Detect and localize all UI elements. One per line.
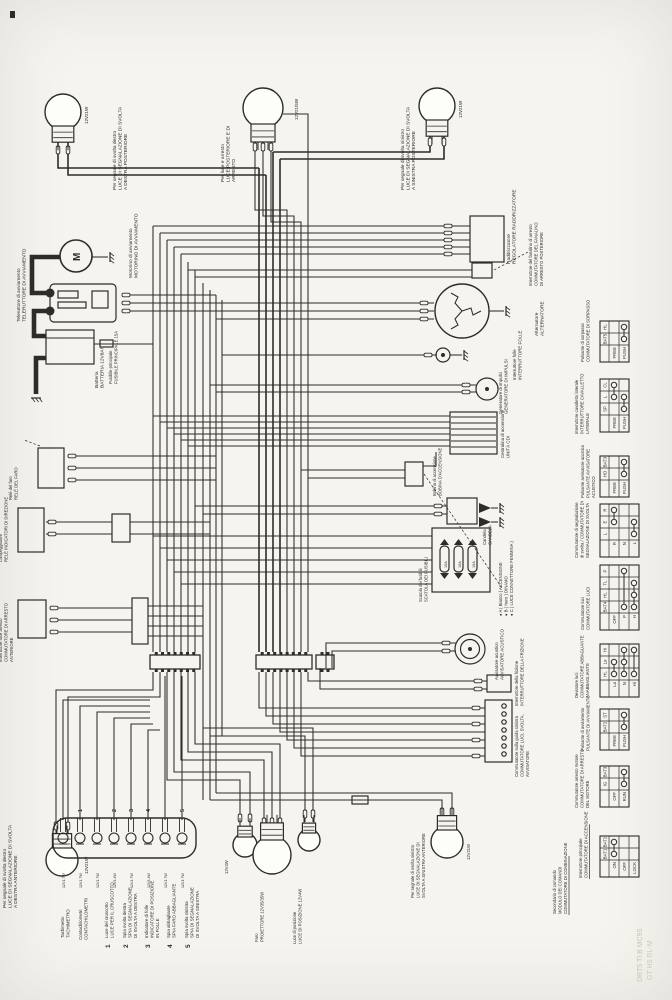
switch-pin bbox=[502, 744, 506, 748]
diagram-label: A DESTRA POSTERIORE bbox=[123, 134, 129, 190]
table-row-label: Lo bbox=[612, 681, 617, 686]
bulb-base bbox=[52, 126, 74, 142]
table-row-label: N bbox=[622, 682, 627, 685]
diagram-label: Relè del faro bbox=[8, 476, 13, 500]
switch-table-5: HLLoHiLoNHi bbox=[600, 644, 639, 697]
diagram-label: Interruttore cavalletto laterale bbox=[574, 379, 579, 434]
bullet-connector bbox=[428, 138, 432, 146]
switch-pin bbox=[502, 720, 506, 724]
connector-pin bbox=[261, 652, 264, 655]
diagram-label: A SINISTRA POSTERIORE bbox=[411, 131, 417, 190]
arrow-symbol bbox=[468, 539, 477, 545]
bullet-connector bbox=[442, 649, 450, 653]
continuity-mark bbox=[611, 659, 616, 664]
continuity-mark bbox=[621, 724, 626, 729]
bulb-base bbox=[261, 823, 284, 840]
diagram-label: Commutatore arresto motore bbox=[574, 754, 579, 808]
table-row-label: FREE bbox=[612, 347, 617, 359]
battery bbox=[46, 330, 94, 364]
diagram-label: Pulsante di avviamento bbox=[580, 707, 585, 751]
switch-pin bbox=[502, 704, 506, 708]
diagram-label: A DESTRA ANTERIORE bbox=[13, 855, 19, 908]
continuity-mark bbox=[631, 647, 636, 652]
diagram-label: LUCE DI SEGNALAZIONE DI SVOLTA bbox=[8, 824, 14, 908]
arrow-symbol bbox=[440, 539, 449, 545]
lamp-number: 1 bbox=[78, 809, 84, 812]
table-row-label: PUSH bbox=[622, 482, 627, 494]
table-col-header: E bbox=[603, 520, 608, 523]
bullet-connector bbox=[420, 309, 428, 313]
diagram-label: RELÈ DEL FARO bbox=[14, 467, 19, 500]
arrow-symbol bbox=[454, 573, 463, 579]
table-row-label: OFF bbox=[622, 862, 627, 871]
diagram-label: DI SVOLTA A DESTRA bbox=[133, 893, 138, 938]
bullet-connector bbox=[68, 466, 76, 470]
bulb-base bbox=[302, 823, 315, 833]
continuity-mark bbox=[621, 647, 626, 652]
battery-cable bbox=[32, 257, 60, 293]
lamp-number: 3 bbox=[129, 809, 135, 812]
diagram-label: COMMUTATORE DI ACCENSIONE bbox=[584, 811, 589, 878]
switch-table-8: BAT1BAT2ONOFFLOCK bbox=[600, 836, 639, 877]
bullet-connector bbox=[122, 293, 130, 297]
diagram-label: SEGNALAZIONE DI SVOLTA bbox=[585, 503, 590, 558]
diagram-label: Interruttore folle bbox=[512, 349, 517, 380]
diagram-label: 12V21W bbox=[84, 106, 89, 124]
diagram-label: COMMUTATORE DI COMBINAZIONE bbox=[563, 842, 568, 914]
table-row-label: LOCK bbox=[632, 862, 637, 874]
connector-pin bbox=[180, 669, 183, 672]
diagram-label: COMMUTATORE DI SORPASSO bbox=[586, 299, 591, 362]
battery-cable bbox=[36, 358, 46, 394]
diagram-label: SPIA FARO ABBAGLIANTE bbox=[172, 884, 177, 938]
diagram-label: Avvisatore acustico bbox=[494, 642, 499, 680]
diagram-label: COMMUTATORE DI ARRESTO bbox=[580, 748, 585, 808]
table-col-header: BAT4 bbox=[603, 601, 608, 612]
diagram-label: ● B ( Nero ) DINAMO bbox=[503, 576, 508, 616]
diagram-label: Tachimetro bbox=[60, 916, 65, 938]
continuity-mark bbox=[611, 519, 616, 524]
bullet-connector bbox=[434, 504, 442, 508]
neutral-switch-dot bbox=[441, 353, 445, 357]
ignition-coil bbox=[447, 498, 477, 524]
bulb-lamp bbox=[431, 826, 463, 858]
connector-pin bbox=[321, 669, 324, 672]
table-col-header: BAT5 bbox=[603, 333, 608, 344]
continuity-mark bbox=[621, 659, 626, 664]
switch-table-7: IGBAT3OFFRUN bbox=[600, 766, 629, 807]
continuity-mark bbox=[611, 394, 616, 399]
diagram-label: RELÈ INDICATORI DI DIREZIONE bbox=[4, 497, 9, 562]
diagram-label: Secondario di comando bbox=[552, 869, 557, 914]
diagram-label: 12V21W bbox=[458, 100, 463, 118]
diagram-label: Faro bbox=[254, 933, 259, 942]
diagram-label: Pulsante avvisatore acustico bbox=[580, 444, 585, 498]
bullet-connector bbox=[253, 143, 257, 151]
bullet-connector bbox=[442, 641, 450, 645]
diagram-label: TELERUTTORE DI AVVIAMENTO bbox=[22, 248, 28, 322]
arrow-symbol bbox=[468, 573, 477, 579]
connector-pin bbox=[273, 669, 276, 672]
diagram-label: Interruttore del fanalino di arresto bbox=[528, 224, 533, 286]
continuity-mark bbox=[631, 531, 636, 536]
diagram-label: LUCE DI SEGNALAZIONE DI SVOLTA bbox=[118, 106, 124, 190]
relay-detail bbox=[58, 302, 86, 308]
diagram-label: LUCE DI POSIZIONE 12V4W bbox=[298, 889, 303, 944]
diagram-label: Interruttore principale bbox=[578, 838, 583, 878]
table-col-header: HL bbox=[603, 592, 608, 598]
diagram-label: Alternatore bbox=[534, 312, 540, 336]
diagram-label: Contachilometri bbox=[78, 909, 83, 940]
table-col-header: Hi bbox=[603, 648, 608, 652]
lamp-rating: 12V1.7W bbox=[96, 873, 100, 888]
diagram-label: ACUSTICO bbox=[591, 476, 596, 498]
wire bbox=[114, 718, 150, 820]
switch-pin bbox=[502, 752, 506, 756]
connector-pin bbox=[180, 652, 183, 655]
diagram-label: ● A ( Bianco ) ACCENSIONE bbox=[498, 562, 503, 616]
bullet-connector bbox=[122, 309, 130, 313]
diagram-label: MODULO DEI COMANDI bbox=[558, 867, 563, 914]
bulb-lamp bbox=[253, 836, 291, 874]
diagram-label: Commutatore di segnalazione bbox=[574, 502, 579, 558]
connector-pin bbox=[279, 669, 282, 672]
diagram-label: GT H5 RL-M bbox=[647, 940, 654, 980]
diagram-label: 12V21/5W bbox=[294, 98, 299, 120]
wire bbox=[326, 643, 456, 668]
diagram-label: Lampeggiatore bbox=[0, 533, 3, 562]
table-col-header: IG bbox=[603, 781, 608, 786]
bullet-connector bbox=[434, 512, 442, 516]
diagram-label: DI SVOLTA A SINISTRA bbox=[195, 891, 200, 938]
lamp-number: 2 bbox=[112, 809, 118, 812]
connector-pin bbox=[267, 652, 270, 655]
diagram-label: PROIETTORE 12V35/35W bbox=[260, 892, 265, 942]
bulb-base bbox=[238, 826, 252, 837]
continuity-mark bbox=[611, 382, 616, 387]
bulb-base bbox=[426, 120, 448, 136]
switch-table-2: HOBAT3FREEPUSH bbox=[600, 456, 629, 497]
flasher-relay bbox=[18, 508, 44, 552]
connector-pin bbox=[321, 652, 324, 655]
switch-table-1: SPLCLFREEPUSH bbox=[600, 379, 629, 432]
horn-dot bbox=[468, 647, 472, 651]
wire bbox=[301, 672, 485, 756]
diagram-label: Per segnale di svolta sinistro bbox=[410, 844, 415, 898]
connector-pin bbox=[267, 669, 270, 672]
connector-pin bbox=[167, 652, 170, 655]
wire bbox=[174, 672, 250, 826]
wire bbox=[131, 724, 153, 820]
diagram-label: 10A bbox=[444, 561, 448, 568]
diagram-label: Deviatore luci bbox=[574, 673, 579, 698]
wire bbox=[210, 800, 442, 820]
bulb-base bbox=[437, 816, 456, 830]
diagram-label: Spia svolta destra bbox=[122, 903, 127, 938]
lamp-rating: 12V1.7W bbox=[164, 873, 168, 888]
switch-pin bbox=[502, 728, 506, 732]
cluster-lamp bbox=[109, 833, 119, 843]
bulb-lamp bbox=[419, 88, 455, 124]
connector-pin bbox=[186, 652, 189, 655]
bullet-connector bbox=[68, 478, 76, 482]
diagram-label: Pulsante di sorpasso bbox=[580, 322, 585, 362]
connector-pin bbox=[304, 652, 307, 655]
wire bbox=[195, 672, 280, 830]
diagram-label: ANTERIORE bbox=[9, 637, 14, 662]
diagram-label: COMMUTATORE ABBAGLIANTE bbox=[580, 635, 585, 698]
diagram-label: Generatore di impulsi bbox=[498, 372, 503, 414]
cluster-lamp bbox=[126, 833, 136, 843]
relay-detail bbox=[58, 291, 78, 298]
switch-pin bbox=[502, 736, 506, 740]
table-col-header: HL bbox=[603, 324, 608, 330]
diagram-label: Teleruttore di avviamento bbox=[16, 268, 22, 322]
table-row-label: N bbox=[622, 542, 627, 545]
bullet-connector bbox=[50, 630, 58, 634]
diagram-label: SVOLTA A SINISTRA ANTERIORE bbox=[421, 833, 426, 898]
cdi-unit bbox=[450, 412, 497, 454]
wire bbox=[210, 736, 305, 822]
wire bbox=[294, 672, 485, 748]
bullet-connector bbox=[472, 722, 480, 726]
diagram-label: BOBINA D'ACCENSIONE bbox=[438, 448, 443, 496]
table-col-header: HO bbox=[603, 470, 608, 477]
connector-pin bbox=[186, 669, 189, 672]
diode-box bbox=[112, 514, 130, 542]
bullet-connector bbox=[444, 224, 452, 228]
diagram-label: 12V4W bbox=[224, 860, 229, 874]
bulb-base bbox=[251, 124, 275, 142]
continuity-mark bbox=[631, 604, 636, 609]
table-row-label: FREE bbox=[612, 735, 617, 747]
connector-pin bbox=[261, 669, 264, 672]
wire bbox=[263, 140, 294, 652]
wire bbox=[203, 728, 313, 822]
diagram-label: SPIA DI SEGNALAZIONE bbox=[190, 887, 195, 938]
wire bbox=[287, 672, 485, 740]
cluster-lamp bbox=[75, 833, 85, 843]
connector-pin bbox=[192, 652, 195, 655]
continuity-mark bbox=[621, 471, 626, 476]
continuity-mark bbox=[621, 781, 626, 786]
continuity-mark bbox=[621, 671, 626, 676]
diagram-label: Bobina di accensione bbox=[432, 456, 437, 496]
table-row-label: FREE bbox=[612, 482, 617, 494]
bulb-lamp bbox=[243, 88, 283, 128]
connector-pin bbox=[298, 669, 301, 672]
connector-pin bbox=[286, 669, 289, 672]
bullet-connector bbox=[474, 687, 482, 691]
table-row-label: PUSH bbox=[622, 735, 627, 747]
table-row-label: R bbox=[612, 542, 617, 545]
table-col-header: L bbox=[603, 395, 608, 398]
diagram-label: Motorino di avviamento bbox=[128, 228, 134, 278]
diagram-label: Commutatore sulla guida sinistra bbox=[514, 715, 519, 777]
relay-detail bbox=[92, 291, 108, 308]
wire bbox=[280, 136, 444, 159]
diagram-label: ARRESTO bbox=[231, 159, 237, 182]
diagram-label: Candela bbox=[482, 529, 487, 545]
diagram-label: AVVISATORE bbox=[525, 751, 530, 777]
cluster-lamp bbox=[143, 833, 153, 843]
wire bbox=[266, 672, 485, 716]
table-row-label: L bbox=[632, 541, 637, 544]
table-row-label: RUN bbox=[622, 792, 627, 801]
diagram-label: Interruttore della frizione bbox=[514, 660, 519, 706]
continuity-mark bbox=[611, 839, 616, 844]
table-col-header: L bbox=[603, 532, 608, 535]
bullet-connector bbox=[444, 252, 452, 256]
arrow-symbol bbox=[454, 539, 463, 545]
diagram-label: 10A bbox=[472, 561, 476, 568]
diagram-label: SPIA DI SEGNALAZIONE bbox=[128, 887, 133, 938]
table-col-header: BAT2 bbox=[603, 836, 608, 847]
diagram-label: PULSANTE DI AVVIAMENTO bbox=[586, 695, 591, 751]
wire bbox=[320, 668, 487, 689]
table-col-header: TL bbox=[603, 580, 608, 586]
diagram-label: COMMUTATORE DI ARRESTO bbox=[4, 602, 9, 662]
bullet-connector bbox=[122, 301, 130, 305]
legend-number: 2 bbox=[123, 944, 130, 948]
continuity-mark bbox=[621, 336, 626, 341]
front-brake-switch bbox=[18, 600, 46, 638]
continuity-mark bbox=[611, 507, 616, 512]
diagram-label: ● C ( LUCE CONNETTORE FEMMINA ) bbox=[509, 541, 514, 616]
table-col-header: P bbox=[603, 569, 608, 572]
lamp-rating: 12V1.7W bbox=[62, 873, 66, 888]
table-row-label: PUSH bbox=[622, 417, 627, 429]
diagram-label: AVVISATORE ACUSTICO bbox=[500, 628, 505, 680]
bullet-connector bbox=[68, 454, 76, 458]
table-row-label: OFF bbox=[612, 792, 617, 801]
bullet-connector bbox=[420, 301, 428, 305]
bullet-connector bbox=[444, 238, 452, 242]
connector-pin bbox=[155, 652, 158, 655]
bullet-connector bbox=[48, 532, 56, 536]
diagram-label: 12V21W bbox=[84, 856, 89, 874]
diagram-label: FUSIBILE PRINCIPALE 15A bbox=[114, 331, 119, 384]
diagram-label: ANABBAGLIANTE bbox=[585, 663, 590, 698]
wire bbox=[332, 651, 456, 668]
diagram-label: Luce del cruscotto bbox=[104, 902, 109, 938]
lamp-rating: 12V1.7W bbox=[130, 873, 134, 888]
diagram-label: 12V21W bbox=[466, 844, 471, 860]
wire bbox=[97, 712, 150, 820]
diagram-label: CONTACHILOMETRI bbox=[84, 898, 89, 940]
wire bbox=[148, 730, 160, 820]
connector-pin bbox=[174, 652, 177, 655]
continuity-mark bbox=[621, 406, 626, 411]
continuity-mark bbox=[621, 712, 626, 717]
diagram-label: Batteria bbox=[94, 371, 100, 388]
regulator-rectifier bbox=[470, 216, 504, 262]
multi-pin-connector bbox=[256, 655, 312, 669]
diagram-label: ALTERNATORE bbox=[540, 301, 546, 336]
diagram-label: IN FOLLE bbox=[155, 918, 160, 938]
diagram-label: SCATOLA DEI FUSIBILI bbox=[424, 557, 429, 602]
continuity-mark bbox=[621, 769, 626, 774]
diagram-label: INDICATORE DI POSIZIONE bbox=[150, 881, 155, 938]
table-row-label: H bbox=[632, 615, 637, 618]
connector-pin bbox=[279, 652, 282, 655]
bullet-connector bbox=[472, 706, 480, 710]
leader-line bbox=[24, 440, 40, 446]
connector-pin bbox=[167, 669, 170, 672]
lamp-number: 5 bbox=[180, 809, 186, 812]
connector-pin bbox=[327, 652, 330, 655]
continuity-mark bbox=[621, 459, 626, 464]
connector-pin bbox=[174, 669, 177, 672]
bullet-connector bbox=[444, 231, 452, 235]
table-col-header: SP bbox=[603, 406, 608, 412]
diagram-label: Spia svolta sinistra bbox=[184, 901, 189, 938]
bullet-connector bbox=[48, 520, 56, 524]
connector-strip bbox=[132, 598, 148, 644]
table-col-header: CL bbox=[603, 382, 608, 388]
connector-pin bbox=[292, 652, 295, 655]
diagram-label: UNITÀ CDI bbox=[506, 436, 511, 458]
wire bbox=[259, 672, 485, 708]
connector-pin bbox=[298, 652, 301, 655]
connector-pin bbox=[192, 669, 195, 672]
connector-pin bbox=[155, 669, 158, 672]
bulb-lamp bbox=[46, 844, 78, 876]
pulse-generator-dot bbox=[485, 387, 489, 391]
switch-table-3: LERRNL bbox=[600, 504, 639, 557]
connector-pin bbox=[161, 669, 164, 672]
relay-lug bbox=[46, 307, 55, 316]
connector-pin bbox=[292, 669, 295, 672]
table-col-header: BAT3 bbox=[603, 456, 608, 467]
legend-number: 1 bbox=[105, 944, 112, 948]
table-row-label: ON bbox=[612, 862, 617, 868]
table-col-header: Lo bbox=[603, 659, 608, 664]
diagram-label: BATTERIA 12V8Ah bbox=[100, 346, 106, 388]
lamp-rating: 12V1.7W bbox=[181, 873, 185, 888]
table-row-label: P bbox=[622, 615, 627, 618]
diagram-label: INTERRUTTORE FOLLE bbox=[518, 330, 523, 380]
starter-relay bbox=[50, 284, 116, 322]
corner-mark bbox=[10, 11, 15, 18]
diagram-label: LUCE DI SEGNALAZIONE DI SVOLTA bbox=[406, 106, 412, 190]
diagram-label: DRT5 TI.B MC95 bbox=[637, 928, 644, 982]
table-col-header: BAT2 bbox=[603, 721, 608, 732]
continuity-mark bbox=[621, 568, 626, 573]
legend-number: 4 bbox=[167, 944, 174, 948]
table-col-header: BAT1 bbox=[603, 848, 608, 859]
bullet-connector bbox=[472, 754, 480, 758]
bullet-connector bbox=[474, 679, 482, 683]
diagram-label: LUCE POSTERIORE E DI bbox=[226, 126, 232, 182]
arrow-symbol bbox=[479, 503, 491, 513]
switch-pin bbox=[502, 712, 506, 716]
diagram-label: TACHIMETRO bbox=[66, 909, 71, 938]
diagram-label: 10A bbox=[458, 561, 462, 568]
continuity-mark bbox=[631, 580, 636, 585]
diagram-label: CANDELA bbox=[488, 525, 493, 545]
bullet-connector bbox=[261, 143, 265, 151]
diagram-label: Commutatore luci bbox=[580, 597, 585, 630]
bullet-connector bbox=[50, 618, 58, 622]
continuity-mark bbox=[611, 671, 616, 676]
diagram-label: Per luce e arresto bbox=[220, 144, 226, 182]
multi-pin-connector bbox=[316, 655, 334, 669]
table-col-header: R bbox=[603, 508, 608, 511]
left-switch-assembly bbox=[485, 700, 512, 762]
diagram-label: Centralina di accensione bbox=[500, 409, 505, 458]
wire bbox=[451, 311, 462, 329]
